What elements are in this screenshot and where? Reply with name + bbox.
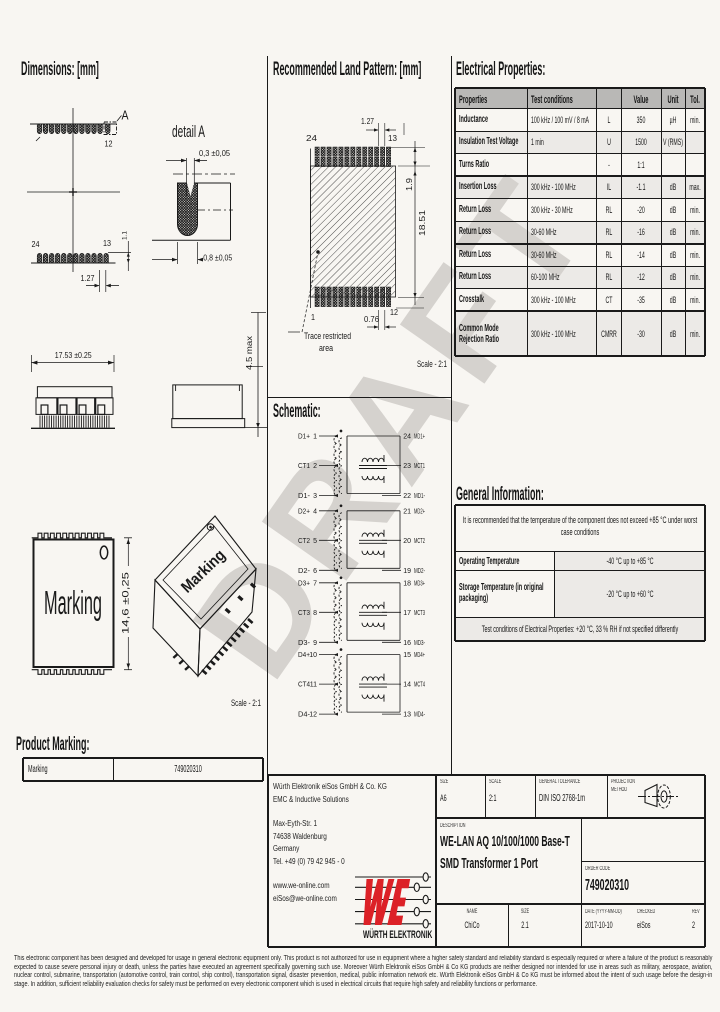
svg-text:area: area [319, 343, 333, 353]
svg-text:9: 9 [313, 640, 317, 647]
svg-text:11: 11 [310, 682, 317, 689]
svg-text:0.76: 0.76 [364, 315, 380, 324]
svg-text:13: 13 [388, 134, 398, 143]
svg-text:MD4-: MD4- [414, 712, 425, 719]
svg-text:4.5 max: 4.5 max [244, 335, 254, 370]
svg-text:4: 4 [313, 508, 317, 515]
svg-text:14: 14 [403, 682, 411, 689]
svg-text:Trace restricted: Trace restricted [304, 331, 351, 341]
svg-text:17: 17 [403, 610, 411, 617]
svg-text:24: 24 [32, 240, 40, 249]
svg-text:21: 21 [403, 508, 411, 515]
svg-text:1.1: 1.1 [122, 231, 129, 240]
svg-text:3: 3 [313, 493, 317, 500]
svg-text:23: 23 [403, 463, 411, 470]
svg-text:1.9: 1.9 [405, 177, 414, 191]
svg-text:MD4+: MD4+ [414, 652, 425, 659]
svg-text:D3-: D3- [298, 640, 311, 647]
svg-text:2: 2 [313, 463, 317, 470]
svg-text:MCT2: MCT2 [414, 538, 425, 545]
svg-text:MD2-: MD2- [414, 568, 425, 575]
svg-text:MD2+: MD2+ [414, 508, 425, 515]
svg-text:CT3: CT3 [298, 610, 310, 617]
svg-text:12: 12 [309, 712, 317, 719]
svg-text:13: 13 [103, 239, 111, 248]
svg-text:24: 24 [306, 134, 318, 143]
svg-text:12: 12 [390, 308, 398, 317]
svg-text:19: 19 [403, 568, 411, 575]
svg-text:MCT3: MCT3 [414, 610, 425, 617]
svg-text:18: 18 [403, 580, 411, 587]
svg-text:16: 16 [403, 640, 411, 647]
svg-text:CT1: CT1 [298, 463, 310, 470]
svg-text:1.27: 1.27 [81, 274, 95, 283]
svg-text:Scale - 2:1: Scale - 2:1 [231, 698, 261, 708]
svg-text:14,6 ±0,25: 14,6 ±0,25 [121, 572, 131, 634]
svg-text:D2-: D2- [298, 568, 311, 575]
svg-text:18.51: 18.51 [418, 209, 427, 236]
svg-text:24: 24 [403, 434, 411, 441]
svg-text:22: 22 [403, 493, 411, 500]
svg-text:7: 7 [313, 580, 317, 587]
svg-text:D1-: D1- [298, 493, 311, 500]
svg-text:MD3-: MD3- [414, 640, 425, 647]
svg-text:1.27: 1.27 [361, 117, 374, 126]
svg-text:10: 10 [309, 652, 317, 659]
svg-text:CT2: CT2 [298, 538, 310, 545]
svg-text:Marking: Marking [178, 547, 229, 597]
svg-text:MD1+: MD1+ [414, 434, 425, 441]
svg-text:17.53 ±0.25: 17.53 ±0.25 [55, 350, 92, 360]
svg-text:6: 6 [313, 568, 317, 575]
svg-text:Marking: Marking [44, 584, 102, 621]
svg-text:detail A: detail A [172, 122, 205, 141]
svg-text:5: 5 [313, 538, 317, 545]
svg-text:MCT4: MCT4 [414, 682, 425, 689]
svg-text:8: 8 [313, 610, 317, 617]
svg-text:D1+: D1+ [298, 434, 310, 441]
svg-text:1: 1 [313, 434, 317, 441]
svg-text:A: A [122, 108, 129, 123]
svg-text:0,8 ±0,05: 0,8 ±0,05 [203, 254, 232, 263]
svg-text:12: 12 [105, 140, 113, 149]
svg-text:1: 1 [311, 313, 315, 322]
svg-text:15: 15 [403, 652, 411, 659]
svg-text:MD1-: MD1- [414, 493, 425, 500]
svg-text:D2+: D2+ [298, 508, 310, 515]
svg-text:20: 20 [403, 538, 411, 545]
svg-text:CT4: CT4 [298, 682, 310, 689]
svg-text:MD3+: MD3+ [414, 580, 425, 587]
svg-text:0,3 ±0,05: 0,3 ±0,05 [199, 149, 231, 158]
svg-text:MCT1: MCT1 [414, 463, 425, 470]
svg-text:D3+: D3+ [298, 580, 310, 587]
svg-text:13: 13 [403, 712, 411, 719]
svg-text:D4+: D4+ [298, 652, 310, 659]
svg-text:Scale - 2:1: Scale - 2:1 [417, 359, 447, 369]
